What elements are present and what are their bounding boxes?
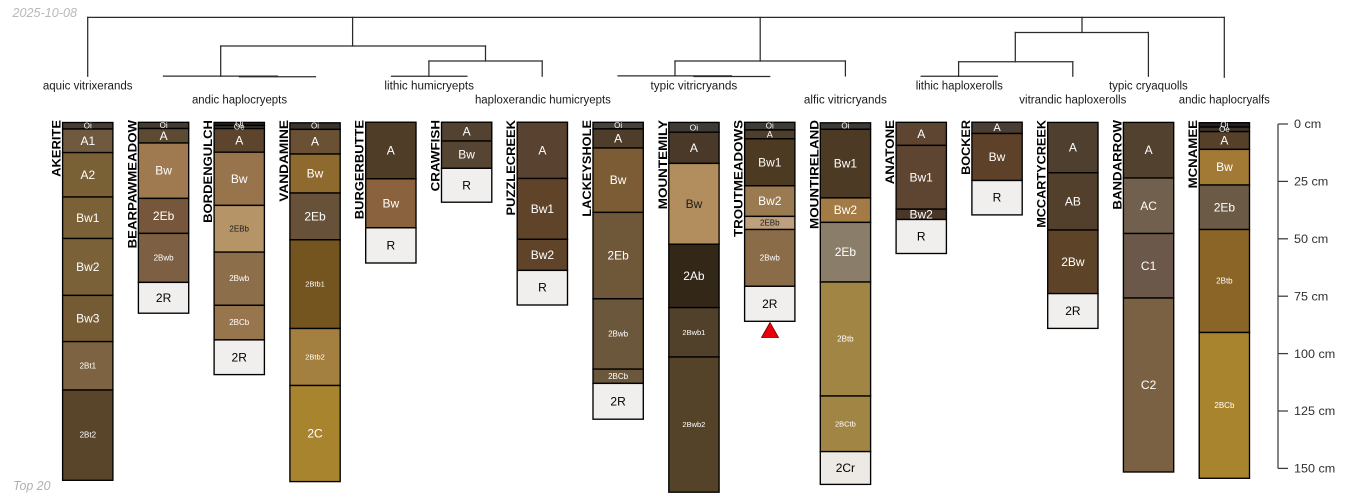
svg-text:AC: AC [1140,199,1157,213]
svg-text:2Eb: 2Eb [835,245,857,259]
svg-text:2Bwb1: 2Bwb1 [682,328,705,337]
svg-text:Bw1: Bw1 [834,157,858,171]
svg-text:C1: C1 [1141,259,1157,273]
svg-text:MCCARTYCREEK: MCCARTYCREEK [1035,120,1049,228]
svg-text:TROUTMEADOWS: TROUTMEADOWS [732,120,746,237]
svg-text:Oe: Oe [1219,125,1230,134]
svg-text:A: A [235,133,243,147]
svg-text:Bw: Bw [610,173,627,187]
svg-text:MOUNTIRELAND: MOUNTIRELAND [807,120,821,229]
svg-text:alfic vitricryands: alfic vitricryands [804,95,887,107]
svg-text:2Bwb: 2Bwb [154,253,175,262]
svg-text:Bw: Bw [155,164,172,178]
svg-text:Oi: Oi [841,122,849,131]
svg-text:A: A [311,135,319,149]
svg-text:CRAWFISH: CRAWFISH [429,120,443,191]
svg-text:Bw: Bw [686,197,703,211]
svg-text:BORDENGULCH: BORDENGULCH [201,120,215,223]
svg-text:Oi: Oi [690,122,699,132]
svg-text:C2: C2 [1141,378,1157,392]
svg-text:Oi: Oi [84,121,92,130]
svg-text:A: A [1145,143,1153,157]
svg-text:BEARPAWMEADOW: BEARPAWMEADOW [125,119,139,248]
svg-text:2BCtb: 2BCtb [835,419,856,428]
svg-text:Bw: Bw [307,167,324,181]
svg-text:2Ab: 2Ab [683,269,705,283]
svg-text:2Eb: 2Eb [1214,200,1236,214]
svg-text:lithic haploxerolls: lithic haploxerolls [916,81,1003,93]
svg-text:50 cm: 50 cm [1294,232,1328,246]
svg-text:AB: AB [1065,194,1081,208]
svg-text:2BCb: 2BCb [608,372,629,381]
svg-text:A: A [160,129,168,143]
svg-text:ANATONE: ANATONE [883,120,897,184]
svg-text:typic vitricryands: typic vitricryands [651,81,738,93]
svg-text:Bw1: Bw1 [531,202,555,216]
svg-text:A: A [1220,134,1228,148]
svg-text:2BCb: 2BCb [229,318,250,327]
svg-text:Oi: Oi [311,122,319,131]
svg-text:Top 20: Top 20 [13,479,51,493]
svg-text:2Bwb: 2Bwb [229,274,250,283]
svg-text:2Bt1: 2Bt1 [80,361,97,370]
svg-text:2R: 2R [762,297,778,311]
svg-text:BURGERBUTTE: BURGERBUTTE [353,120,367,219]
svg-text:2Btb2: 2Btb2 [305,353,325,362]
svg-text:lithic humicryepts: lithic humicryepts [384,81,474,93]
svg-text:andic haplocryepts: andic haplocryepts [192,95,287,107]
svg-text:A: A [1069,141,1077,155]
svg-text:25 cm: 25 cm [1294,175,1328,189]
svg-text:Bw2: Bw2 [758,194,782,208]
svg-text:0 cm: 0 cm [1294,117,1321,131]
svg-text:2Eb: 2Eb [153,209,175,223]
svg-text:R: R [538,281,547,295]
svg-text:VANDAMINE: VANDAMINE [277,120,291,202]
svg-text:125 cm: 125 cm [1294,404,1335,418]
svg-text:vitrandic haploxerolls: vitrandic haploxerolls [1019,95,1126,107]
svg-text:A2: A2 [80,168,95,182]
svg-text:Bw: Bw [989,150,1006,164]
svg-text:Bw2: Bw2 [76,260,100,274]
svg-text:A1: A1 [80,134,95,148]
svg-text:150 cm: 150 cm [1294,462,1335,476]
svg-text:Bw2: Bw2 [531,248,555,262]
svg-text:R: R [917,230,926,244]
svg-text:2Bt2: 2Bt2 [80,431,97,440]
svg-text:2BCb: 2BCb [1214,401,1235,410]
svg-text:A: A [463,125,471,139]
svg-text:A: A [538,143,546,157]
svg-text:Oi: Oi [614,121,622,130]
svg-text:A: A [690,141,698,155]
svg-text:2R: 2R [156,291,172,305]
svg-text:MCNAMEE: MCNAMEE [1186,120,1200,188]
svg-text:2Bw: 2Bw [1061,255,1085,269]
svg-text:2R: 2R [610,394,626,408]
svg-text:Bw: Bw [1216,160,1233,174]
svg-text:2EBb: 2EBb [229,224,249,233]
svg-text:2Bwb: 2Bwb [760,253,781,262]
svg-text:typic cryaquolls: typic cryaquolls [1109,81,1188,93]
svg-text:75 cm: 75 cm [1294,289,1328,303]
svg-text:2Bwb2: 2Bwb2 [682,420,705,429]
svg-text:2Btb: 2Btb [1216,277,1233,286]
svg-text:R: R [462,178,471,192]
svg-text:haploxerandic humicryepts: haploxerandic humicryepts [475,95,611,107]
svg-text:2Btb1: 2Btb1 [305,280,325,289]
svg-text:Bw3: Bw3 [76,312,100,326]
svg-text:2Cr: 2Cr [836,461,855,475]
svg-text:2Bwb: 2Bwb [608,329,629,338]
svg-text:BANDARROW: BANDARROW [1110,119,1124,209]
svg-text:R: R [993,191,1002,205]
svg-text:andic haplocryalfs: andic haplocryalfs [1179,95,1270,107]
svg-text:Bw: Bw [231,172,248,186]
svg-text:Oe: Oe [234,123,245,132]
svg-text:Bw1: Bw1 [758,155,782,169]
svg-text:2025-10-08: 2025-10-08 [11,6,77,20]
svg-text:AKERITE: AKERITE [50,120,64,177]
svg-text:A: A [767,129,773,139]
svg-text:2R: 2R [1065,304,1081,318]
svg-text:A: A [387,144,395,158]
svg-text:2R: 2R [232,350,248,364]
svg-text:2Eb: 2Eb [607,249,629,263]
svg-text:A: A [614,131,622,145]
svg-text:2Btb: 2Btb [837,335,854,344]
svg-text:PUZZLECREEK: PUZZLECREEK [504,120,518,216]
svg-text:MOUNTEMILY: MOUNTEMILY [656,120,670,209]
svg-text:2Eb: 2Eb [304,209,326,223]
svg-text:A: A [993,122,1001,134]
svg-text:100 cm: 100 cm [1294,347,1335,361]
svg-text:R: R [386,238,395,252]
svg-text:2C: 2C [307,427,323,441]
svg-text:BOCKER: BOCKER [959,120,973,175]
svg-text:LACKEYSHOLE: LACKEYSHOLE [580,120,594,217]
svg-text:A: A [917,127,925,141]
svg-text:Bw2: Bw2 [910,207,934,221]
svg-text:aquic vitrixerands: aquic vitrixerands [43,81,133,93]
svg-text:Bw1: Bw1 [76,211,100,225]
svg-text:Bw: Bw [382,196,399,210]
svg-text:Bw2: Bw2 [834,203,858,217]
svg-text:Bw1: Bw1 [910,170,934,184]
svg-text:2EBb: 2EBb [760,218,780,227]
svg-text:Bw: Bw [458,148,475,162]
